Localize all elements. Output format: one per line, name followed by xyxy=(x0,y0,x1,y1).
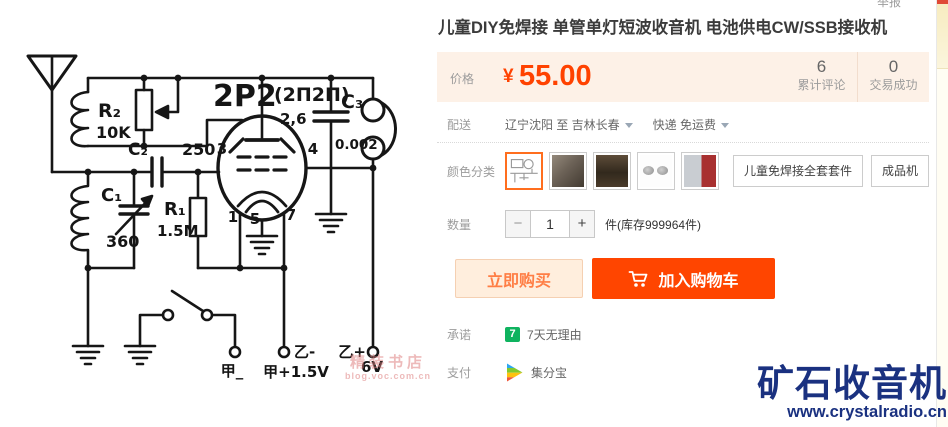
price-amount: 55.00 xyxy=(519,60,592,93)
shipping-route-text: 辽宁沈阳 至 吉林长春 xyxy=(505,118,620,132)
label-r2-value: 10K xyxy=(96,123,131,142)
sku-thumb-earphones[interactable] xyxy=(637,152,675,190)
stock-note: 件(库存999964件) xyxy=(605,216,701,233)
label-r2: R₂ xyxy=(98,100,121,122)
shipping-label: 配送 xyxy=(447,116,505,133)
label-tube-top-pins: 2,6 xyxy=(280,110,307,128)
chevron-down-icon xyxy=(721,123,729,128)
jifenbao-icon xyxy=(505,363,524,382)
site-watermark-title: 矿石收音机 xyxy=(757,365,947,403)
label-tube: 2P2 xyxy=(213,79,277,114)
chevron-down-icon xyxy=(625,123,633,128)
report-link[interactable]: 举报 xyxy=(877,0,901,10)
circuit-thumb-icon xyxy=(508,155,540,187)
label-c3: C₃ xyxy=(341,91,363,113)
quantity-plus-button[interactable]: + xyxy=(569,210,595,238)
quantity-label: 数量 xyxy=(447,216,505,233)
label-c1: C₁ xyxy=(101,185,122,206)
potentiometer-icon xyxy=(136,90,152,130)
switch-icon xyxy=(163,291,212,320)
finished-radio-photo xyxy=(684,155,716,187)
label-term-a-plus: 甲+1.5V xyxy=(263,363,329,381)
parts-photo xyxy=(596,155,628,187)
sku-label: 颜色分类 xyxy=(447,163,505,180)
label-pin7: 7 xyxy=(286,206,296,224)
promise-label: 承诺 xyxy=(447,326,505,343)
label-c1-value: 360 xyxy=(106,232,139,251)
shipping-route-dropdown[interactable]: 辽宁沈阳 至 吉林长春 xyxy=(505,116,633,133)
sku-thumb-kit-photo[interactable] xyxy=(549,152,587,190)
sku-option-finished[interactable]: 成品机 xyxy=(871,155,929,187)
label-r1: R₁ xyxy=(164,199,186,220)
label-pin4: 4 xyxy=(308,140,318,158)
cart-icon xyxy=(628,270,649,288)
site-watermark: 矿石收音机 www.crystalradio.cn xyxy=(757,365,947,421)
deals-count: 0 xyxy=(858,57,929,77)
label-c2: C₂ xyxy=(128,140,148,160)
label-pin5: 5 xyxy=(250,210,260,228)
label-r1-value: 1.5M xyxy=(157,222,199,240)
label-tube-alt: (2П2П) xyxy=(274,84,350,106)
sku-thumb-circuit-diagram[interactable] xyxy=(505,152,543,190)
price-box: 价格 ¥ 55.00 6 累计评论 0 交易成功 xyxy=(437,52,929,102)
deals-label: 交易成功 xyxy=(858,77,929,93)
side-panel-edge xyxy=(936,0,948,427)
label-term-a-minus: 甲_ xyxy=(221,362,244,380)
promise-text: 7天无理由 xyxy=(527,326,582,343)
shipping-method-dropdown[interactable]: 快递 免运费 xyxy=(653,116,729,133)
label-c2-value: 250 xyxy=(182,140,215,159)
label-term-b-volt: 6V xyxy=(361,358,383,376)
side-panel-top xyxy=(937,4,948,69)
label-pin3: 3 xyxy=(217,140,227,158)
circuit-diagram: R₂ 10K C₂ 250 2P2 (2П2П) 2,6 3 4 C₃ 0.00… xyxy=(0,0,436,427)
quantity-minus-button[interactable]: − xyxy=(505,210,531,238)
quantity-stepper: − + xyxy=(505,210,595,238)
reviews-label: 累计评论 xyxy=(786,77,857,93)
product-title: 儿童DIY免焊接 单管单灯短波收音机 电池供电CW/SSB接收机 xyxy=(438,16,918,40)
sku-thumb-finished-radio[interactable] xyxy=(681,152,719,190)
product-main-image[interactable]: R₂ 10K C₂ 250 2P2 (2П2П) 2,6 3 4 C₃ 0.00… xyxy=(0,0,436,427)
divider xyxy=(437,142,929,143)
stat-reviews[interactable]: 6 累计评论 xyxy=(786,52,857,102)
add-to-cart-button[interactable]: 加入购物车 xyxy=(592,258,775,299)
earphones-photo xyxy=(640,155,672,187)
label-term-b-minus: 乙- xyxy=(294,343,315,361)
quantity-input[interactable] xyxy=(531,210,569,238)
add-to-cart-label: 加入购物车 xyxy=(658,267,738,291)
label-c3-value: 0.002 xyxy=(335,137,378,153)
product-page: R₂ 10K C₂ 250 2P2 (2П2П) 2,6 3 4 C₃ 0.00… xyxy=(0,0,948,427)
sku-thumb-parts-photo[interactable] xyxy=(593,152,631,190)
payment-label: 支付 xyxy=(447,364,505,381)
site-watermark-url: www.crystalradio.cn xyxy=(757,403,947,421)
payment-text: 集分宝 xyxy=(531,364,567,381)
label-pin1: 1 xyxy=(228,208,238,226)
kit-photo xyxy=(552,155,584,187)
price-currency: ¥ xyxy=(503,66,514,88)
shipping-method-text: 快递 免运费 xyxy=(653,118,716,132)
sku-option-kit[interactable]: 儿童免焊接全套套件 xyxy=(733,155,863,187)
buy-now-button[interactable]: 立即购买 xyxy=(455,259,583,298)
price-label: 价格 xyxy=(450,70,474,87)
reviews-count: 6 xyxy=(786,57,857,77)
stat-deals[interactable]: 0 交易成功 xyxy=(857,52,929,102)
seven-day-badge-icon: 7 xyxy=(505,327,520,342)
coil-icon xyxy=(72,172,89,268)
coil-icon xyxy=(72,92,89,146)
